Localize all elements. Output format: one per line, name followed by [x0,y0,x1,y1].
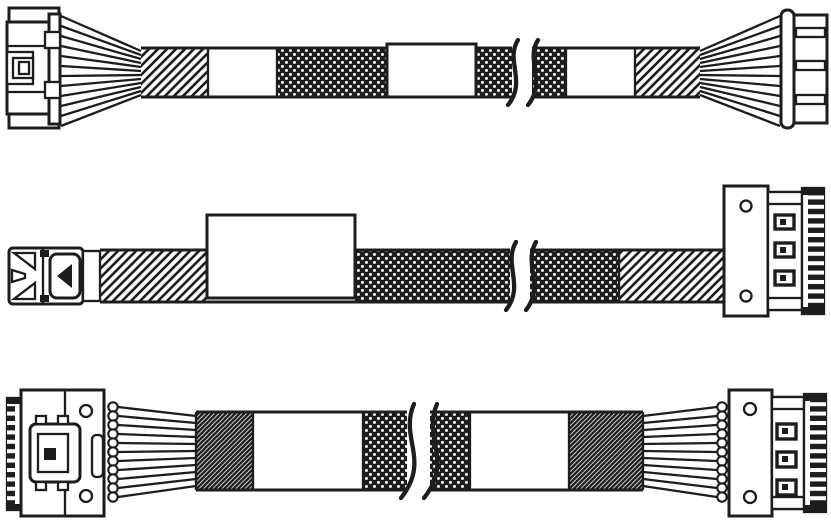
latch-bump [58,416,68,424]
housing-bar-top [772,397,804,409]
pin-bar [781,10,794,128]
break-mark [508,40,538,105]
wire-bundle [108,402,117,501]
dense-sleeve [569,412,643,490]
tab-upper [45,32,60,48]
groove [796,28,825,37]
wire-fan-left [61,16,141,126]
latch-inner [19,62,29,74]
cable-label [207,215,355,298]
contact-pin [780,247,786,253]
tab-lower [45,82,60,98]
mating-edge-teeth [808,188,824,314]
screw-hole [80,490,92,502]
screw-hole [741,201,752,212]
ribbon-fan-left [118,407,196,497]
right-connector [724,186,824,316]
left-connector [9,248,100,304]
edge-cap-bottom [804,505,826,512]
mesh-sleeve [476,48,512,97]
cable-label [387,44,476,97]
hatch-sleeve [635,48,700,97]
nub-lower [40,295,49,302]
mesh-sleeve [363,412,407,490]
edge-cap-top [804,394,826,401]
right-connector [717,390,826,516]
right-connector [781,10,827,128]
contact-pin [780,275,786,281]
housing-bar-bottom [768,298,802,310]
screw-hole [80,405,92,417]
hatch-sleeve [100,250,207,302]
contact-pin [782,456,788,462]
cable-diagram-figure [0,0,831,524]
screw-hole [744,403,756,415]
edge-cap-bottom [802,307,824,314]
mating-edge-teeth [810,394,826,512]
strain-relief [83,251,100,301]
nub-upper [40,250,49,257]
side-slot [92,435,103,477]
latch-bump [58,482,68,490]
edge-cap-bottom [7,504,21,510]
housing-bar-top [768,192,802,204]
groove [796,95,825,104]
groove [796,61,825,70]
wire-fan-right [700,16,780,126]
latch-bump [36,416,46,424]
hatch-sleeve [619,250,724,302]
cable-2 [9,186,824,316]
screw-hole [741,291,752,302]
edge-cap-top [802,188,824,195]
hatch-sleeve [141,48,208,97]
screw-hole [744,491,756,503]
mesh-sleeve [355,250,510,302]
wire-bar [49,14,60,124]
latch-pin [44,448,56,460]
cable-1 [7,8,827,128]
left-connector [7,8,60,128]
mesh-sleeve [277,48,387,97]
left-connector [7,390,118,516]
cable-3 [7,390,826,516]
mesh-sleeve [530,250,619,302]
latch-bump [36,482,46,490]
housing-bar-bottom [772,497,804,509]
contact-pin [780,219,786,225]
dense-sleeve [196,412,253,490]
wire-bundle [717,402,726,501]
break-mark [506,242,536,310]
contact-pin [782,428,788,434]
contact-pin [782,484,788,490]
ribbon-fan-right [643,407,717,497]
cable-diagram [0,0,831,524]
edge-cap-top [7,398,21,404]
mating-edge-teeth [7,398,15,510]
